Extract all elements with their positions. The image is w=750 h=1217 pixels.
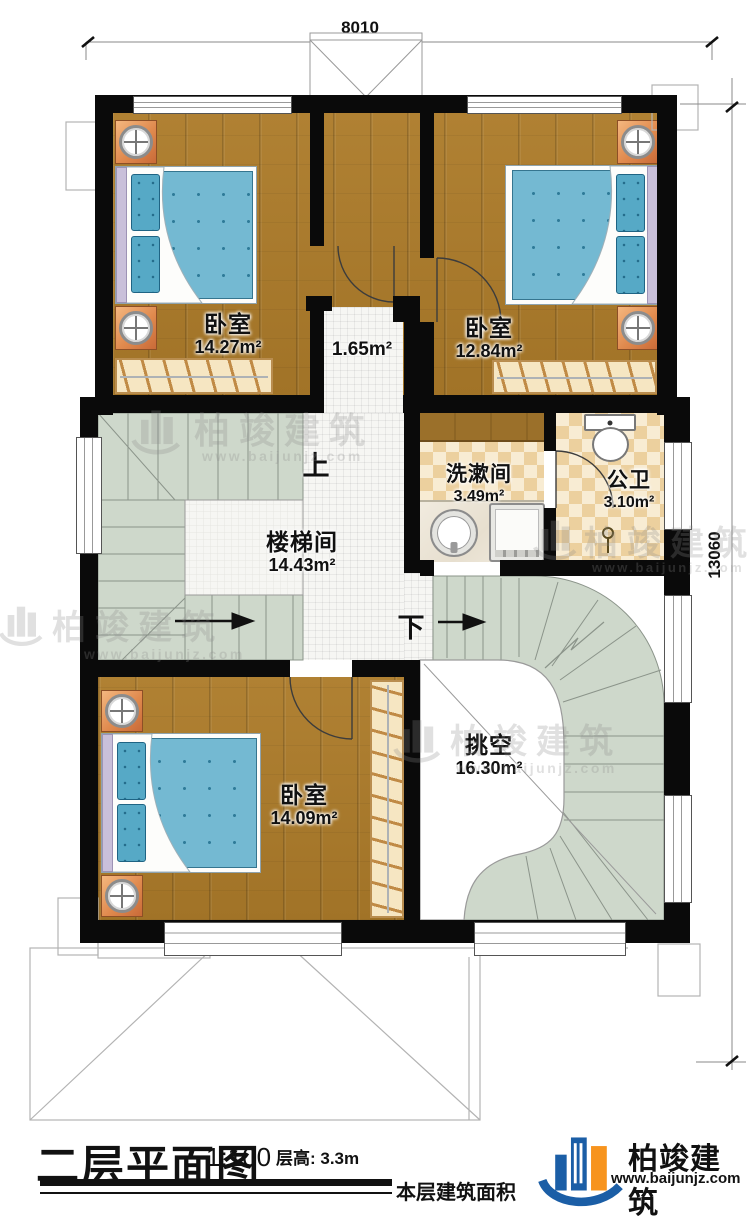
washing-machine xyxy=(489,503,545,562)
label-stairs-up: 上 xyxy=(303,444,330,483)
lamp-icon xyxy=(621,125,655,159)
nightstand xyxy=(101,690,143,732)
wall xyxy=(657,95,677,397)
window xyxy=(664,442,692,530)
window xyxy=(133,96,292,114)
wardrobe xyxy=(370,680,404,918)
wall xyxy=(420,322,434,395)
window xyxy=(164,922,342,956)
window xyxy=(664,595,692,703)
wall xyxy=(420,113,434,258)
label-stairs-down: 下 xyxy=(398,606,425,645)
wall xyxy=(420,560,434,576)
lamp-icon xyxy=(105,694,139,728)
title-underline xyxy=(40,1179,392,1186)
wall xyxy=(95,113,113,400)
washroom-cabinet xyxy=(420,413,544,442)
lamp-icon xyxy=(105,879,139,913)
window xyxy=(76,437,102,554)
wall xyxy=(306,296,332,311)
bed-bottom xyxy=(101,733,261,873)
label-toilet: 公卫3.10m² xyxy=(604,468,655,513)
floor-stairwell xyxy=(98,413,404,660)
window xyxy=(474,922,626,956)
floor-height: 层高: 3.3m xyxy=(276,1144,359,1169)
window xyxy=(467,96,622,114)
wall xyxy=(500,560,664,576)
brand-logo-icon xyxy=(536,1126,626,1212)
label-nook-area: 1.65m² xyxy=(332,340,392,360)
nightstand xyxy=(115,306,157,350)
wall xyxy=(404,677,420,920)
label-washroom: 洗漱间3.49m² xyxy=(446,462,512,507)
lamp-icon xyxy=(119,125,153,159)
floor-void-strip xyxy=(420,660,433,920)
label-bedroom-bl: 卧室14.09m² xyxy=(270,783,337,828)
label-stairwell: 楼梯间14.43m² xyxy=(266,530,338,575)
nightstand xyxy=(617,120,659,164)
wardrobe xyxy=(115,358,273,394)
wall xyxy=(404,322,420,573)
wall xyxy=(403,395,664,413)
wall xyxy=(80,660,290,677)
lamp-icon xyxy=(119,311,153,345)
label-void: 挑空16.30m² xyxy=(455,733,522,778)
dimension-right: 13060 xyxy=(705,520,725,590)
label-bedroom-tl: 卧室14.27m² xyxy=(194,312,261,357)
bed-top-right xyxy=(505,165,659,305)
wall xyxy=(310,113,324,246)
wall xyxy=(544,413,556,451)
bay-window xyxy=(310,33,422,97)
label-bedroom-tr: 卧室12.84m² xyxy=(455,316,522,361)
wall xyxy=(310,302,324,413)
lamp-icon xyxy=(621,311,655,345)
title-block: 二层平面图 1:100 层高: 3.3m 本层建筑面积 柏竣建筑 www.bai… xyxy=(0,1122,750,1217)
nightstand xyxy=(115,120,157,164)
floor-area-label: 本层建筑面积 xyxy=(396,1176,516,1205)
nightstand xyxy=(101,875,143,917)
title-underline-thin xyxy=(40,1192,392,1194)
drawing-scale: 1:100 xyxy=(206,1142,271,1173)
wall xyxy=(393,296,420,322)
sink xyxy=(430,509,478,557)
floor-plan-page: 8010 13060 xyxy=(0,0,750,1217)
floor-hall-nook xyxy=(319,307,403,413)
bed-top-left xyxy=(115,166,257,304)
toilet-bowl xyxy=(592,427,629,462)
wall xyxy=(352,660,420,677)
brand-website: www.baijunjz.com xyxy=(611,1170,740,1187)
wardrobe xyxy=(492,360,657,394)
wall xyxy=(95,395,319,413)
watermark: 柏竣建筑 www.baijunjz.com xyxy=(0,596,46,659)
nightstand xyxy=(617,306,659,350)
window xyxy=(664,795,692,903)
dimension-top: 8010 xyxy=(330,18,390,38)
watermark-logo-icon xyxy=(0,596,46,654)
